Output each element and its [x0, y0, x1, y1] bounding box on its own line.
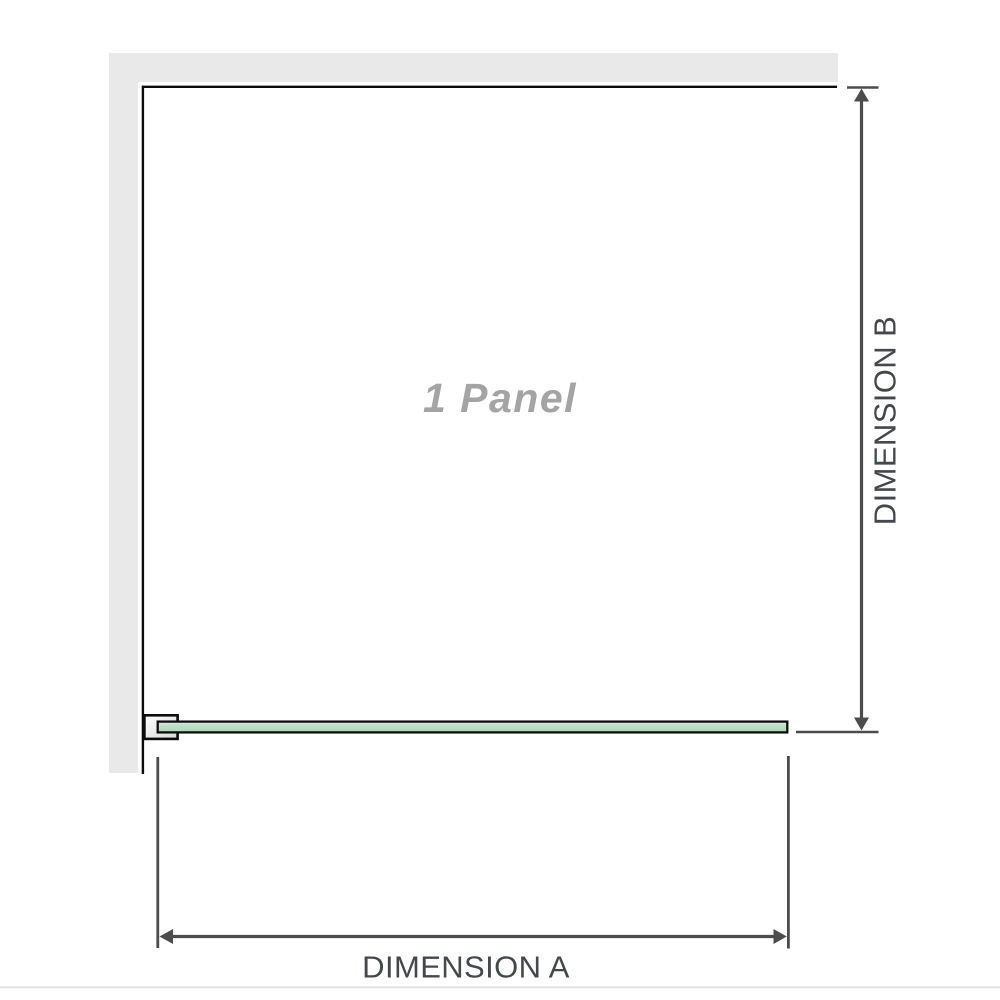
- svg-text:DIMENSION B: DIMENSION B: [868, 316, 903, 525]
- svg-text:1 Panel: 1 Panel: [423, 375, 577, 421]
- svg-text:DIMENSION A: DIMENSION A: [362, 950, 570, 985]
